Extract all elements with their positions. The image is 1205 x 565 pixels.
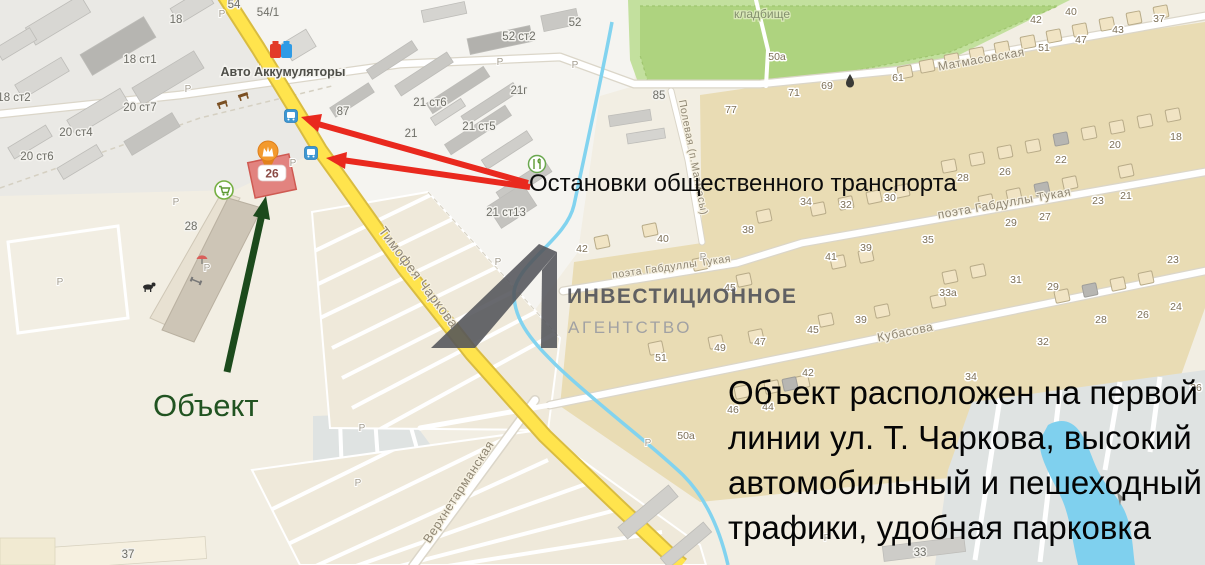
parking-p: P xyxy=(645,438,652,449)
house-number: 29 xyxy=(1005,217,1017,229)
building-number: 87 xyxy=(337,106,350,118)
stops-annotation: Остановки общественного транспорта xyxy=(529,170,957,197)
house-number: 50a xyxy=(768,51,786,63)
building-number: 54 xyxy=(228,0,241,11)
house-number: 69 xyxy=(821,80,833,92)
building-number: 85 xyxy=(653,90,666,102)
house-number: 33a xyxy=(939,287,957,299)
description-line: линии ул. Т. Чаркова, высокий xyxy=(728,419,1192,456)
building-number: 18 xyxy=(170,14,183,26)
house-number: 45 xyxy=(807,324,819,336)
parking-p: P xyxy=(204,263,211,274)
building-number: 21 ст13 xyxy=(486,207,526,219)
building-number: 52 ст2 xyxy=(502,31,535,43)
house-number: 42 xyxy=(1030,14,1042,26)
house-number: 35 xyxy=(922,234,934,246)
building-number: 33 xyxy=(914,547,927,559)
house-number: 40 xyxy=(657,233,669,245)
parking-p: P xyxy=(700,252,707,263)
cart-icon xyxy=(215,181,233,199)
building-number: 20 ст7 xyxy=(123,102,156,114)
building-number: 52 xyxy=(569,17,582,29)
house-number: 23 xyxy=(1167,254,1179,266)
house-number: 20 xyxy=(1109,139,1121,151)
building-number: 21 ст6 xyxy=(413,97,446,109)
description-line: трафики, удобная парковка xyxy=(728,509,1152,546)
house-number: 26 xyxy=(999,166,1011,178)
object-annotation: Объект xyxy=(153,388,259,423)
parking-p: P xyxy=(497,57,504,68)
building-number: 54/1 xyxy=(257,7,279,19)
house-number: 23 xyxy=(1092,195,1104,207)
house-number: 32 xyxy=(1037,336,1049,348)
building-number: 37 xyxy=(122,549,135,561)
house-number: 61 xyxy=(892,72,904,84)
house-number: 71 xyxy=(788,87,800,99)
house-number: 41 xyxy=(825,251,837,263)
parking-p: P xyxy=(355,478,362,489)
house-number: 40 xyxy=(1065,6,1077,18)
house-number: 32 xyxy=(840,199,852,211)
house-number: 28 xyxy=(957,172,969,184)
parking-p: P xyxy=(290,158,297,169)
logo-line2: АГЕНТСТВО xyxy=(568,318,692,337)
parking-p: P xyxy=(185,84,192,95)
house-number: 31 xyxy=(1010,274,1022,286)
bus-stop-icon[interactable] xyxy=(285,110,298,123)
object-building-badge: 26 xyxy=(258,165,286,181)
house-number: 21 xyxy=(1120,190,1132,202)
description-line: Объект расположен на первой xyxy=(728,374,1198,411)
house-number: 34 xyxy=(800,196,812,208)
house-number: 37 xyxy=(1153,13,1165,25)
building-number: 21г xyxy=(511,85,528,97)
house-number: 22 xyxy=(1055,154,1067,166)
map-canvas: Тимофея Чаркова Матмасовская поэта Габду… xyxy=(0,0,1205,565)
house-number: 26 xyxy=(1137,309,1149,321)
house-number: 29 xyxy=(1047,281,1059,293)
house-number: 28 xyxy=(1095,314,1107,326)
parking-p: P xyxy=(219,9,226,20)
description-line: автомобильный и пешеходный xyxy=(728,464,1202,501)
building-number: 18 ст2 xyxy=(0,92,31,104)
house-number: 47 xyxy=(1075,34,1087,46)
building-number: 21 xyxy=(405,128,418,140)
house-number: 27 xyxy=(1039,211,1051,223)
logo-line1: ИНВЕСТИЦИОННОЕ xyxy=(567,285,797,308)
house-number: 77 xyxy=(725,104,737,116)
building-number: 28 xyxy=(185,221,198,233)
building-number: 21 ст5 xyxy=(462,121,495,133)
house-number: 38 xyxy=(742,224,754,236)
building-number: 20 ст6 xyxy=(20,151,53,163)
house-number: 51 xyxy=(1038,42,1050,54)
house-number: 24 xyxy=(1170,301,1182,313)
parking-p: P xyxy=(173,197,180,208)
svg-text:26: 26 xyxy=(265,167,279,181)
parking-p: P xyxy=(57,277,64,288)
cemetery-label: кладбище xyxy=(734,7,790,21)
map-screenshot: Тимофея Чаркова Матмасовская поэта Габду… xyxy=(0,0,1205,565)
parking-p: P xyxy=(495,257,502,268)
house-number: 49 xyxy=(714,342,726,354)
house-number: 42 xyxy=(576,243,588,255)
house-number: 39 xyxy=(860,242,872,254)
house-number: 50a xyxy=(677,430,695,442)
house-number: 43 xyxy=(1112,24,1124,36)
house-number: 39 xyxy=(855,314,867,326)
battery-shop-label: Авто Аккумуляторы xyxy=(221,65,346,79)
house-number: 18 xyxy=(1170,131,1182,143)
parking-p: P xyxy=(359,423,366,434)
house-number: 51 xyxy=(655,352,667,364)
building-number: 18 ст1 xyxy=(123,54,156,66)
bus-stop-icon[interactable] xyxy=(305,147,318,160)
parking-p: P xyxy=(572,60,579,71)
house-number: 47 xyxy=(754,336,766,348)
building-number: 20 ст4 xyxy=(59,127,93,139)
